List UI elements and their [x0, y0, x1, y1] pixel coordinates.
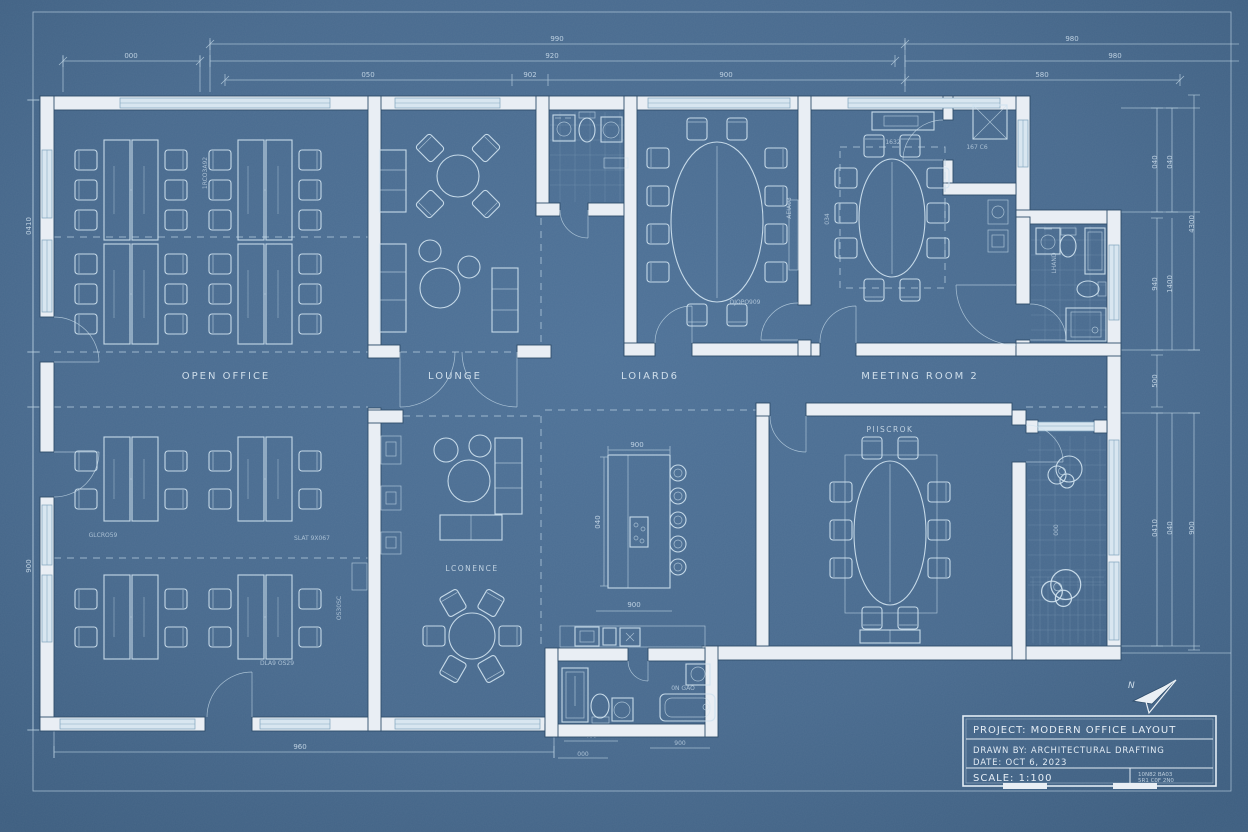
room-label-open-office: OPEN OFFICE: [182, 371, 271, 382]
dim-label: 040: [594, 515, 602, 528]
dim-label: 900: [627, 601, 640, 609]
room-label-meeting-room-2: MEETING ROOM 2: [861, 371, 979, 382]
dim-label: 1632: [885, 139, 900, 146]
dim-label: 1400: [1166, 275, 1174, 293]
room-label-boardroom: LOIARD6: [621, 371, 679, 382]
north-arrow-label: N: [1128, 681, 1135, 691]
dim-label: 050: [361, 71, 374, 79]
dim-label: 0410: [25, 217, 33, 235]
dim-label: 580: [1035, 71, 1048, 79]
annotation: GLCRO59: [89, 532, 118, 539]
annotation: 167 C6: [966, 144, 988, 151]
dim-label: 980: [1108, 52, 1121, 60]
floor-plan-drawing: 990 980 000 920 980 050 902 900 580 040 …: [0, 0, 1248, 832]
dim-label: 940: [1151, 277, 1159, 290]
dim-label: 040: [1151, 155, 1159, 168]
dim-label: 900: [1188, 521, 1196, 534]
annotation: AEIA03: [786, 197, 793, 219]
annotation: 0N GAO: [671, 685, 695, 692]
room-label-conference: LCONENCE: [445, 564, 498, 573]
dim-label: 902: [523, 71, 536, 79]
dim-label: 900: [630, 441, 643, 449]
title-block-stamp: 5R1 C0F 2N0: [1138, 778, 1174, 784]
title-block-project: PROJECT: MODERN OFFICE LAYOUT: [973, 725, 1176, 736]
dim-label: 000: [124, 52, 137, 60]
dim-label: 900: [719, 71, 732, 79]
annotation: DLA9 OS29: [260, 660, 294, 667]
annotation: OJOPO909: [729, 299, 760, 306]
annotation: 1RCO3A92: [202, 157, 209, 189]
dim-label: 0410: [1151, 519, 1159, 537]
title-block-drawn-by: DRAWN BY: ARCHITECTURAL DRAFTING: [973, 746, 1165, 756]
blueprint-page: 990 980 000 920 980 050 902 900 580 040 …: [0, 0, 1248, 832]
dim-label: 040: [1166, 521, 1174, 534]
title-block-date: DATE: OCT 6, 2023: [973, 758, 1067, 768]
dim-label: 980: [1065, 35, 1078, 43]
dim-label: 500: [1151, 374, 1159, 387]
dim-label: 990: [550, 35, 563, 43]
dim-label: 900: [674, 740, 686, 747]
annotation: OS30SC: [336, 596, 343, 620]
dim-label: 4300: [1188, 215, 1196, 233]
dim-label: 000: [577, 751, 589, 758]
annotation: 000: [1053, 524, 1060, 536]
dim-label: 960: [293, 743, 306, 751]
room-label-lounge: LOUNGE: [428, 371, 482, 382]
dim-label: 040: [1166, 155, 1174, 168]
annotation: LHAND: [1051, 252, 1058, 273]
title-block-scale: SCALE: 1:100: [973, 773, 1052, 784]
dim-label: 900: [25, 559, 33, 572]
room-label-meeting-room-3: PIISCROK: [867, 425, 914, 434]
dim-label: 920: [545, 52, 558, 60]
dim-label: 034: [824, 213, 831, 225]
annotation: SLAT 9X067: [294, 535, 330, 542]
